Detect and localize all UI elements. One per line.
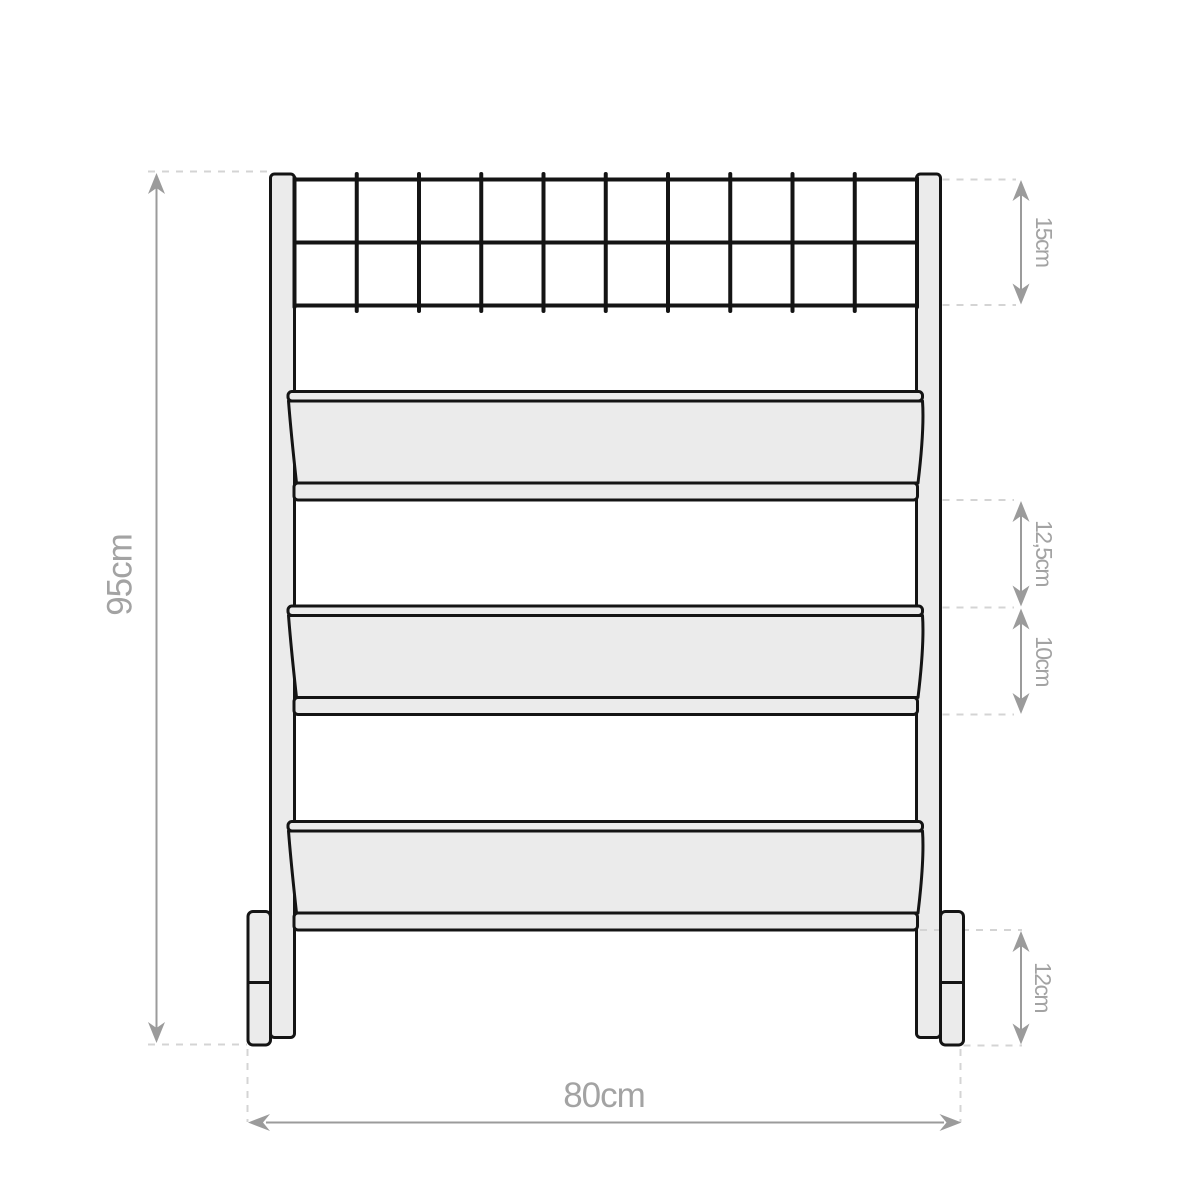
svg-text:95cm: 95cm bbox=[100, 534, 139, 616]
svg-text:10cm: 10cm bbox=[1031, 636, 1057, 686]
svg-text:15cm: 15cm bbox=[1031, 217, 1057, 267]
svg-text:12cm: 12cm bbox=[1030, 962, 1056, 1012]
svg-text:12,5cm: 12,5cm bbox=[1031, 520, 1057, 586]
svg-text:80cm: 80cm bbox=[563, 1076, 645, 1115]
